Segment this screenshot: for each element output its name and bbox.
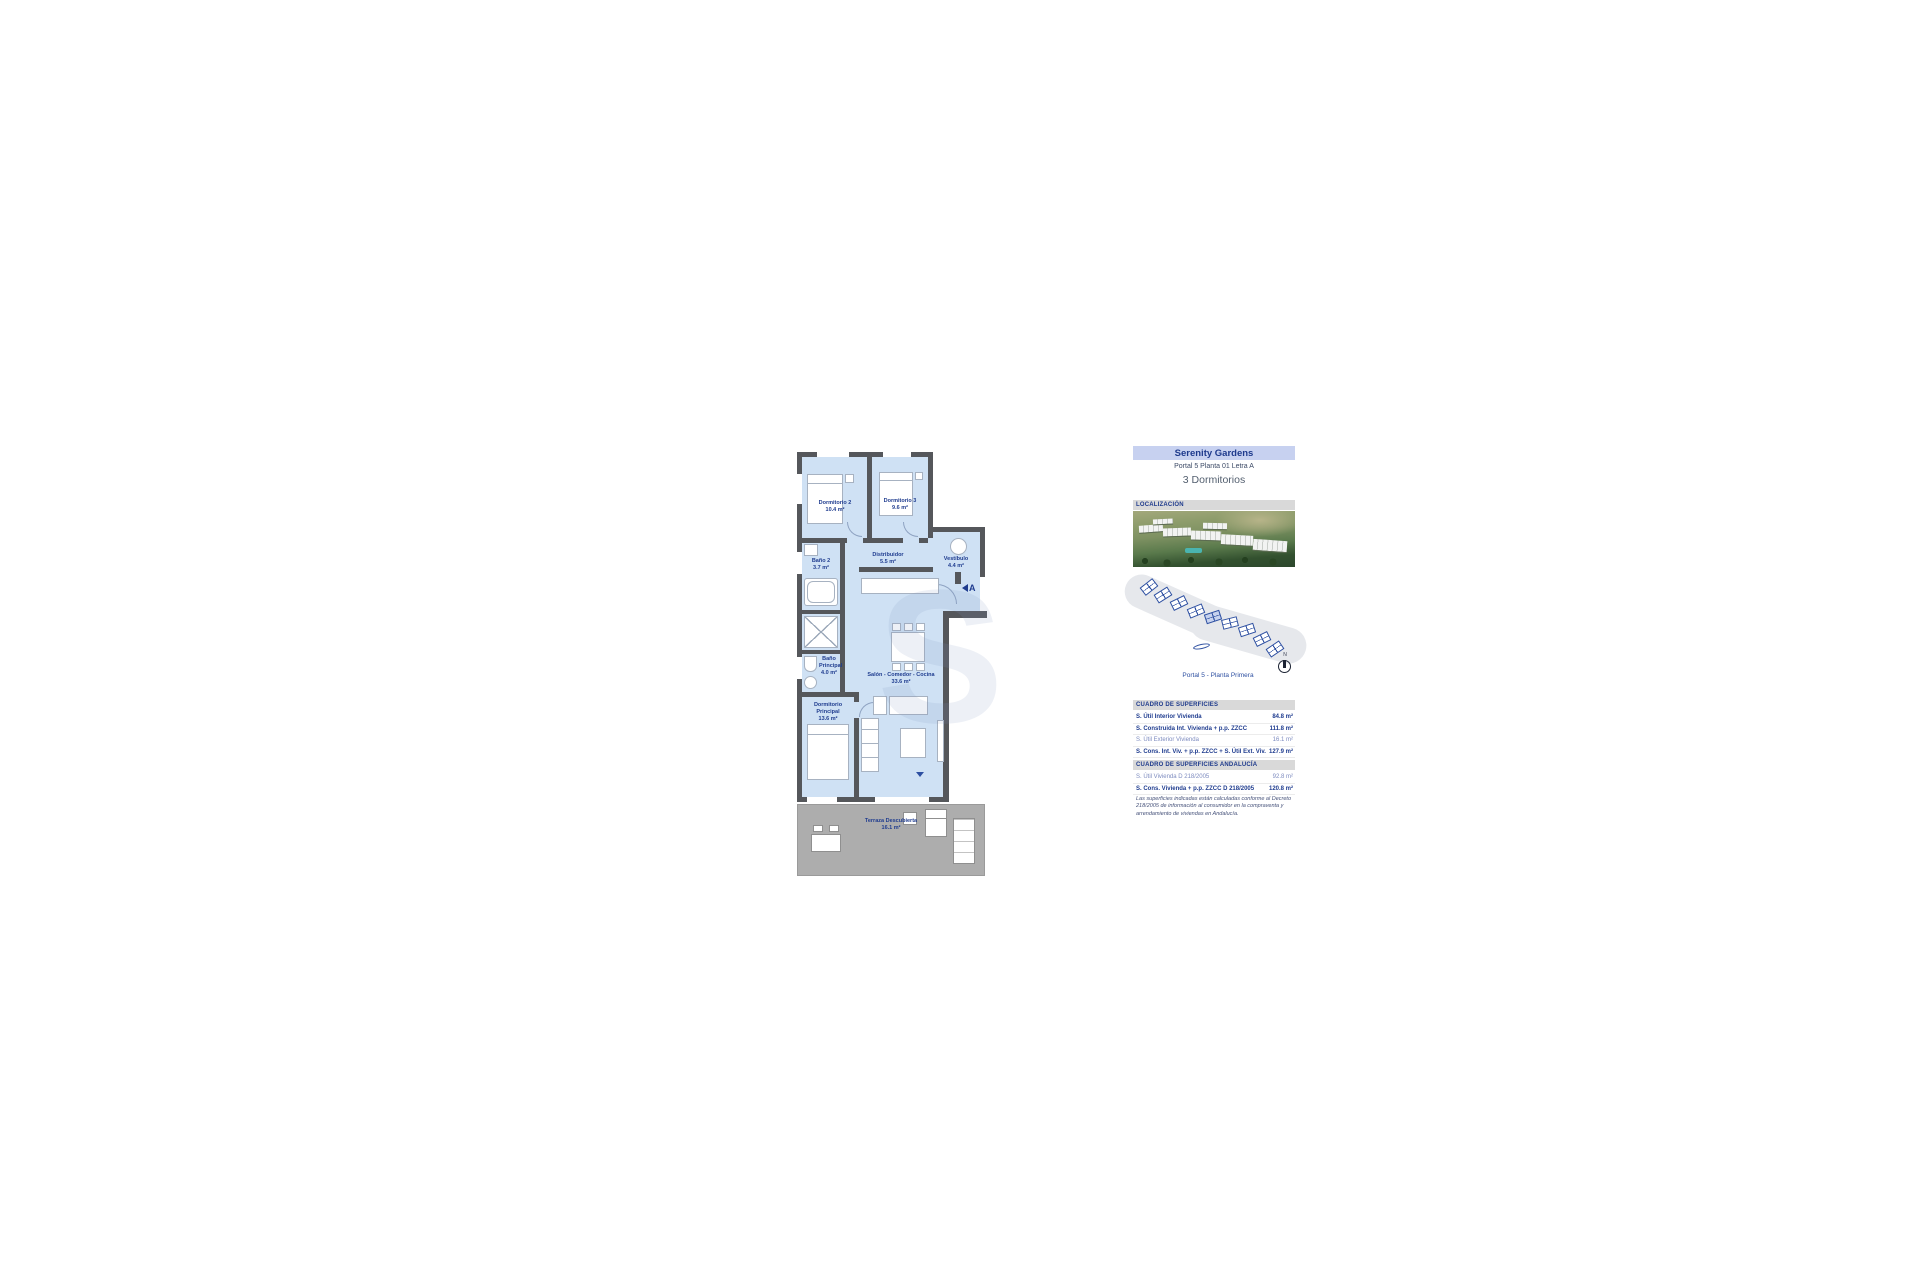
table-row: S. Útil Vivienda D 218/2005 92.8 m² [1133,772,1295,784]
wall-segment [802,610,840,614]
photo-building [1191,530,1221,541]
photo-building [1203,523,1227,530]
floor-plan: S A Dormitorio 210.4 m² Dormitorio 39.6 … [797,452,997,877]
entrance-marker: A [962,583,976,593]
bathtub [804,578,838,606]
photo-building [1139,524,1163,534]
nightstand [915,472,923,480]
unit-subtitle: Portal 5 Planta 01 Letra A [1133,463,1295,470]
photo-building [1253,539,1288,553]
nightstand [845,474,854,483]
terrace-door-opening [875,797,929,802]
location-section-header: LOCALIZACIÓN [1133,500,1295,510]
wall-segment [802,650,840,654]
door-opening [847,538,863,543]
site-pond [1193,642,1211,650]
photo-pool [1185,548,1202,553]
table-row: S. Cons. Int. Viv. + p.p. ZZCC + S. Útil… [1133,747,1295,759]
window [883,452,911,457]
kitchen-unit [889,696,928,715]
window [807,797,837,802]
room-label-salon: Salón - Comedor - Cocina33.6 m² [865,672,937,686]
title-bar: Serenity Gardens [1133,446,1295,460]
kitchen-counter [861,578,939,594]
dining-table [891,632,925,662]
table-row: S. Cons. Vivienda + p.p. ZZCC D 218/2005… [1133,784,1295,796]
washer [950,538,967,555]
compass-north-label: N [1280,652,1290,658]
room-label-bano2: Baño 23.7 m² [803,558,839,572]
kitchen-unit [873,696,887,715]
chair [904,623,913,631]
toilet [804,656,817,672]
room-label-dormitorio-principal: Dormitorio Principal13.6 m² [803,702,853,723]
chair [904,663,913,671]
wall-segment [928,527,985,532]
wall-segment [980,527,985,577]
kitchen-column [937,720,944,762]
wall-segment [867,457,872,538]
room-label-dormitorio2: Dormitorio 210.4 m² [805,500,865,514]
window [797,552,802,574]
page-title: Serenity Gardens [1175,448,1254,459]
wall-segment [928,452,933,538]
corridor-fill [845,538,859,692]
chair [916,623,925,631]
entrance-letter: A [969,583,976,593]
terrace-chair [829,825,839,832]
kitchen-cabinets [861,718,879,772]
window [797,474,802,504]
site-plan: Portal 5 - Planta Primera N [1133,578,1295,696]
bed [807,724,849,780]
terrace-table [811,834,841,852]
legal-footnote: Las superficies indicadas están calculad… [1136,796,1292,818]
sink [804,676,817,689]
room-label-vestibulo: Vestíbulo4.4 m² [935,556,977,570]
sun-lounger [953,818,975,864]
photo-trees [1133,553,1295,567]
sink [804,544,818,556]
location-photo [1133,511,1295,567]
terrace-chair [813,825,823,832]
window [817,452,849,457]
photo-building [1163,528,1191,538]
door-opening [903,538,919,543]
chair [892,663,901,671]
info-panel: Serenity Gardens Portal 5 Planta 01 Letr… [1133,446,1295,826]
entrance-arrow-icon [962,584,968,592]
table-row: S. Útil Interior Vivienda 84.8 m² [1133,712,1295,724]
shower [804,616,838,648]
wall-segment [943,611,987,618]
sofa [900,728,926,758]
wall-segment [840,538,845,694]
direction-marker-icon [916,772,924,777]
surfaces-table-header: CUADRO DE SUPERFICIES [1133,700,1295,710]
wall-segment [797,692,859,697]
chair [916,663,925,671]
wall-segment [859,567,933,572]
compass-icon [1278,660,1291,673]
bedrooms-heading: 3 Dormitorios [1133,474,1295,486]
table-row: S. Construida Int. Vivienda + p.p. ZZCC … [1133,724,1295,736]
wall-segment [955,572,961,584]
table-row: S. Útil Exterior Vivienda 16.1 m² [1133,735,1295,747]
chair [892,623,901,631]
window [797,657,802,679]
wall-segment [797,452,802,802]
photo-building [1153,518,1173,525]
room-label-bano-principal: Baño Principal4.0 m² [819,656,839,677]
site-plan-caption: Portal 5 - Planta Primera [1163,672,1273,679]
room-label-terraza: Terraza Descubierta16.1 m² [849,818,933,832]
room-label-distribuidor: Distribuidor5.5 m² [865,552,911,566]
bed [807,474,843,524]
room-label-dormitorio3: Dormitorio 39.6 m² [873,498,927,512]
surfaces-andalucia-table-header: CUADRO DE SUPERFICIES ANDALUCÍA [1133,760,1295,770]
photo-building [1221,534,1254,547]
wall-segment [943,618,949,802]
